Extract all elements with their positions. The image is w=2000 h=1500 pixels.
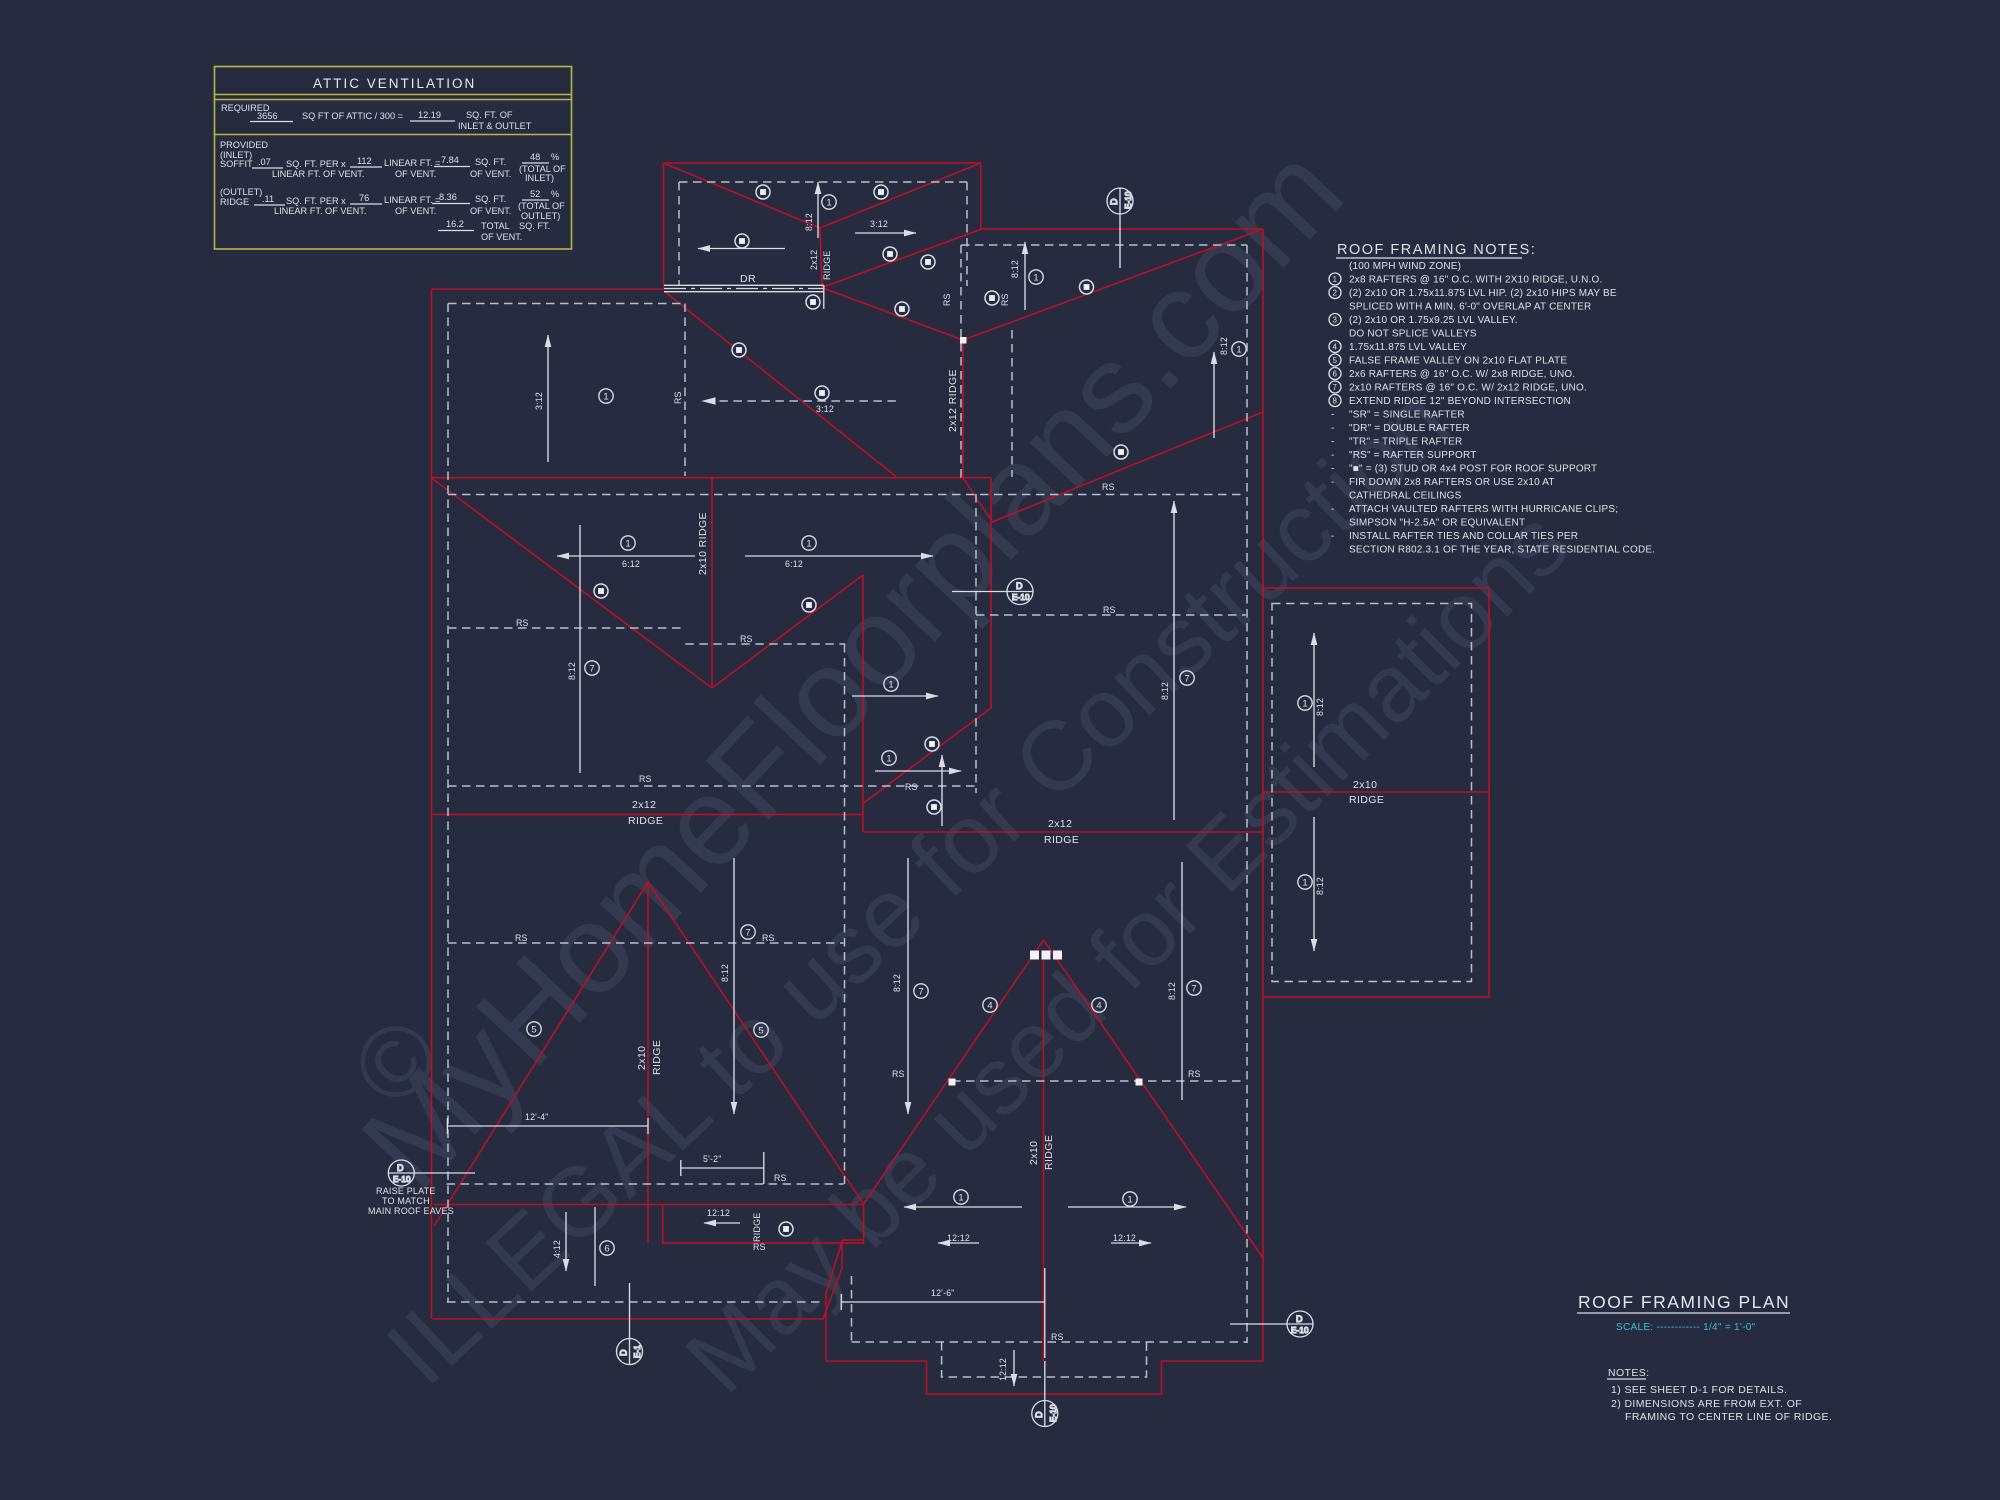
svg-text:NOTES:: NOTES: [1608, 1367, 1650, 1379]
svg-text:FIR DOWN 2x8 RAFTERS OR USE 2x: FIR DOWN 2x8 RAFTERS OR USE 2x10 AT [1349, 477, 1555, 488]
svg-text:MAIN ROOF EAVES: MAIN ROOF EAVES [368, 1206, 454, 1216]
svg-text:3: 3 [1333, 316, 1338, 325]
svg-text:"TR" = TRIPLE RAFTER: "TR" = TRIPLE RAFTER [1349, 437, 1462, 448]
svg-text:8:12: 8:12 [892, 974, 902, 992]
svg-text:1: 1 [958, 1192, 963, 1203]
svg-text:5: 5 [758, 1025, 763, 1036]
svg-text:DO NOT SPLICE VALLEYS: DO NOT SPLICE VALLEYS [1349, 329, 1477, 340]
svg-text:ATTIC VENTILATION: ATTIC VENTILATION [313, 76, 476, 91]
svg-text:RIDGE: RIDGE [1044, 834, 1079, 846]
svg-text:SQ. FT.: SQ. FT. [519, 221, 550, 231]
svg-text:E-10: E-10 [1049, 1404, 1058, 1422]
svg-text:%: % [551, 189, 559, 199]
svg-text:SOFFIT: SOFFIT [220, 159, 253, 169]
svg-text:RS: RS [1102, 482, 1115, 492]
svg-text:LINEAR FT. =: LINEAR FT. = [384, 195, 440, 205]
svg-text:"RS" = RAFTER SUPPORT: "RS" = RAFTER SUPPORT [1349, 450, 1477, 461]
svg-text:TO MATCH: TO MATCH [382, 1196, 430, 1206]
svg-text:-: - [1331, 531, 1335, 542]
svg-text:-: - [1331, 477, 1335, 488]
svg-text:SQ. FT.: SQ. FT. [475, 194, 506, 204]
svg-text:6:12: 6:12 [622, 559, 640, 569]
svg-text:"DR" = DOUBLE RAFTER: "DR" = DOUBLE RAFTER [1349, 423, 1470, 434]
svg-text:RS: RS [516, 618, 529, 628]
svg-text:ATTACH VAULTED RAFTERS WITH HU: ATTACH VAULTED RAFTERS WITH HURRICANE CL… [1349, 504, 1618, 515]
svg-text:-: - [1331, 410, 1335, 421]
svg-text:LINEAR FT. =: LINEAR FT. = [384, 158, 440, 168]
svg-text:-: - [1331, 464, 1335, 475]
svg-text:RS: RS [1103, 605, 1116, 615]
svg-text:1: 1 [603, 391, 608, 402]
svg-text:RIDGE: RIDGE [822, 250, 832, 280]
svg-text:RS: RS [774, 1173, 787, 1183]
svg-text:1: 1 [1333, 275, 1338, 284]
svg-text:3:12: 3:12 [816, 404, 834, 414]
svg-text:RIDGE: RIDGE [1349, 794, 1384, 806]
svg-text:8:12: 8:12 [1167, 982, 1177, 1000]
svg-text:2: 2 [1333, 289, 1338, 298]
svg-text:D: D [619, 1349, 629, 1356]
svg-text:SQ FT OF ATTIC / 300 =: SQ FT OF ATTIC / 300 = [302, 111, 403, 121]
svg-text:1: 1 [1302, 877, 1307, 888]
svg-text:1: 1 [1236, 344, 1241, 355]
svg-text:1: 1 [1302, 698, 1307, 709]
svg-text:RS: RS [1000, 293, 1010, 306]
svg-text:52: 52 [530, 189, 540, 199]
svg-text:RS: RS [905, 782, 918, 792]
svg-text:2) DIMENSIONS ARE FROM EXT. O: 2) DIMENSIONS ARE FROM EXT. OF [1611, 1398, 1802, 1410]
svg-text:4: 4 [1333, 343, 1338, 352]
svg-text:LINEAR FT. OF VENT.: LINEAR FT. OF VENT. [274, 206, 366, 216]
svg-text:8.36: 8.36 [439, 192, 457, 202]
svg-text:-: - [1331, 423, 1335, 434]
svg-text:-: - [1331, 437, 1335, 448]
svg-text:(2) 2x10 OR 1.75x11.875 LVL HI: (2) 2x10 OR 1.75x11.875 LVL HIP. (2) 2x1… [1349, 288, 1617, 299]
svg-text:OF VENT.: OF VENT. [395, 169, 436, 179]
svg-text:8: 8 [1333, 397, 1338, 406]
svg-text:8:12: 8:12 [1160, 682, 1170, 700]
svg-text:PROVIDED: PROVIDED [220, 140, 268, 150]
svg-text:2x10: 2x10 [1353, 779, 1377, 791]
svg-text:3:12: 3:12 [534, 392, 544, 410]
svg-text:D: D [1296, 1314, 1303, 1324]
svg-text:.11: .11 [262, 194, 274, 204]
svg-text:D: D [1034, 1411, 1044, 1418]
svg-text:3656: 3656 [257, 111, 277, 121]
svg-text:RS: RS [639, 774, 652, 784]
svg-text:6: 6 [604, 1243, 609, 1254]
svg-text:5: 5 [531, 1024, 536, 1035]
svg-text:E-10: E-10 [1012, 593, 1030, 602]
svg-text:8:12: 8:12 [1219, 337, 1229, 355]
svg-text:1: 1 [826, 197, 831, 208]
svg-text:E-1: E-1 [633, 1345, 642, 1358]
svg-text:1: 1 [806, 538, 811, 549]
svg-text:7: 7 [1191, 983, 1196, 994]
svg-text:2x12: 2x12 [809, 250, 819, 270]
svg-text:112: 112 [357, 156, 372, 166]
svg-text:OF VENT.: OF VENT. [470, 206, 511, 216]
svg-text:"SR" = SINGLE RAFTER: "SR" = SINGLE RAFTER [1349, 410, 1465, 421]
svg-text:RIDGE: RIDGE [651, 1040, 663, 1075]
svg-text:RS: RS [942, 293, 952, 306]
svg-text:(100 MPH WIND ZONE): (100 MPH WIND ZONE) [1349, 261, 1461, 272]
svg-text:E-10: E-10 [1291, 1326, 1309, 1335]
svg-text:2x12: 2x12 [1048, 818, 1072, 830]
svg-text:(TOTAL OF: (TOTAL OF [518, 201, 565, 211]
svg-text:1: 1 [1127, 1194, 1132, 1205]
svg-text:2x8 RAFTERS @ 16" O.C. WITH 2X: 2x8 RAFTERS @ 16" O.C. WITH 2X10 RIDGE, … [1349, 275, 1603, 286]
svg-text:RS: RS [673, 391, 683, 404]
svg-text:-: - [1331, 504, 1335, 515]
svg-text:INLET & OUTLET: INLET & OUTLET [458, 121, 532, 131]
svg-text:RAISE PLATE: RAISE PLATE [376, 1186, 436, 1196]
svg-text:1: 1 [886, 753, 891, 764]
svg-text:7: 7 [918, 986, 923, 997]
svg-text:RS: RS [515, 933, 528, 943]
svg-text:7.84: 7.84 [441, 155, 459, 165]
svg-text:RS: RS [892, 1069, 905, 1079]
svg-text:OUTLET): OUTLET) [521, 211, 560, 221]
svg-text:RS: RS [1051, 1332, 1064, 1342]
svg-text:RIDGE: RIDGE [1043, 1135, 1055, 1170]
svg-text:8:12: 8:12 [720, 964, 730, 982]
svg-text:E-10: E-10 [1124, 191, 1133, 209]
svg-text:OF VENT.: OF VENT. [395, 206, 436, 216]
svg-text:8:12: 8:12 [1010, 260, 1020, 278]
svg-text:RS: RS [740, 634, 753, 644]
svg-text:1) SEE SHEET D-1 FOR DETAILS.: 1) SEE SHEET D-1 FOR DETAILS. [1611, 1384, 1787, 1396]
svg-text:D: D [1016, 581, 1023, 591]
svg-text:SQ. FT. OF: SQ. FT. OF [466, 110, 513, 120]
svg-text:4: 4 [1096, 1000, 1101, 1011]
svg-text:7: 7 [1333, 383, 1338, 392]
svg-text:CATHEDRAL CEILINGS: CATHEDRAL CEILINGS [1349, 491, 1462, 502]
svg-text:3:12: 3:12 [870, 219, 888, 229]
svg-text:SECTION R802.3.1 OF THE YEAR,: SECTION R802.3.1 OF THE YEAR, STATE RESI… [1349, 545, 1655, 556]
svg-text:RS: RS [762, 933, 775, 943]
svg-text:1: 1 [1033, 272, 1038, 283]
svg-text:LINEAR FT. OF VENT.: LINEAR FT. OF VENT. [272, 169, 364, 179]
svg-text:"■" = (3) STUD OR 4x4 POST: "■" = (3) STUD OR 4x4 POST FOR ROOF SUPP… [1349, 464, 1597, 475]
svg-text:RIDGE: RIDGE [628, 815, 663, 827]
svg-text:RIDGE: RIDGE [220, 197, 249, 207]
svg-text:(OUTLET): (OUTLET) [220, 187, 262, 197]
svg-text:12.19: 12.19 [418, 110, 441, 120]
svg-text:2x10 RIDGE: 2x10 RIDGE [697, 512, 709, 575]
svg-text:7: 7 [1184, 673, 1189, 684]
svg-text:4: 4 [987, 1000, 992, 1011]
svg-text:8:12: 8:12 [804, 213, 814, 231]
svg-text:7: 7 [589, 663, 594, 674]
svg-text:FRAMING TO CENTER LINE OF RIDG: FRAMING TO CENTER LINE OF RIDGE. [1625, 1411, 1832, 1423]
svg-text:.07: .07 [258, 157, 271, 167]
svg-text:2x6 RAFTERS @ 16" O.C. W/ 2x8: 2x6 RAFTERS @ 16" O.C. W/ 2x8 RIDGE, UNO… [1349, 369, 1575, 380]
svg-text:1.75x11.875 LVL VALLEY: 1.75x11.875 LVL VALLEY [1349, 342, 1467, 353]
svg-text:2x12 RIDGE: 2x12 RIDGE [947, 369, 959, 432]
svg-text:2x12: 2x12 [632, 799, 656, 811]
svg-text:OF VENT.: OF VENT. [481, 232, 522, 242]
svg-text:FALSE FRAME VALLEY ON 2x10 FLA: FALSE FRAME VALLEY ON 2x10 FLAT PLATE [1349, 356, 1567, 367]
svg-text:EXTEND RIDGE 12" BEYOND INTERS: EXTEND RIDGE 12" BEYOND INTERSECTION [1349, 396, 1571, 407]
svg-text:8:12: 8:12 [1315, 698, 1325, 716]
svg-text:INSTALL RAFTER TIES AND COLLAR: INSTALL RAFTER TIES AND COLLAR TIES PER [1349, 531, 1578, 542]
svg-text:SQ. FT. PER x: SQ. FT. PER x [286, 196, 346, 206]
svg-text:INLET): INLET) [525, 173, 554, 183]
svg-text:12:12: 12:12 [1113, 1233, 1136, 1243]
svg-text:8:12: 8:12 [1315, 877, 1325, 895]
svg-text:12:12: 12:12 [707, 1208, 730, 1218]
svg-text:12:12: 12:12 [947, 1233, 970, 1243]
svg-text:TOTAL: TOTAL [481, 221, 510, 231]
svg-text:1: 1 [625, 538, 630, 549]
svg-text:(2) 2x10 OR 1.75x9.25 LVL VALL: (2) 2x10 OR 1.75x9.25 LVL VALLEY. [1349, 315, 1518, 326]
svg-text:DR: DR [740, 273, 756, 285]
svg-text:E-10: E-10 [393, 1175, 411, 1184]
svg-text:6:12: 6:12 [785, 559, 803, 569]
svg-text:5: 5 [1333, 356, 1338, 365]
svg-text:SPLICED WITH A MIN. 6'-0" OVER: SPLICED WITH A MIN. 6'-0" OVERLAP AT CEN… [1349, 302, 1591, 313]
svg-text:12'-6": 12'-6" [931, 1288, 955, 1298]
svg-text:%: % [551, 152, 559, 162]
svg-text:SIMPSON "H-2.5A" OR EQUIVALENT: SIMPSON "H-2.5A" OR EQUIVALENT [1349, 518, 1525, 529]
svg-text:6: 6 [1333, 370, 1338, 379]
svg-text:D: D [397, 1163, 404, 1173]
svg-text:RIDGE: RIDGE [752, 1212, 762, 1242]
svg-text:5'-2": 5'-2" [703, 1154, 722, 1164]
svg-text:12:12: 12:12 [998, 1358, 1008, 1381]
svg-text:SQ. FT. PER x: SQ. FT. PER x [286, 159, 346, 169]
svg-text:2x10: 2x10 [1028, 1141, 1040, 1165]
svg-text:76: 76 [359, 193, 369, 203]
svg-text:16.2: 16.2 [446, 219, 464, 229]
svg-text:OF VENT.: OF VENT. [470, 169, 511, 179]
svg-text:7: 7 [745, 927, 750, 938]
svg-text:1: 1 [888, 679, 893, 690]
svg-text:D: D [1109, 198, 1119, 205]
svg-text:2x10: 2x10 [636, 1046, 648, 1070]
svg-text:ROOF FRAMING PLAN: ROOF FRAMING PLAN [1578, 1292, 1790, 1312]
svg-text:ROOF FRAMING NOTES:: ROOF FRAMING NOTES: [1337, 242, 1536, 258]
svg-text:-: - [1331, 450, 1335, 461]
svg-text:12'-4": 12'-4" [525, 1112, 549, 1122]
svg-text:8:12: 8:12 [567, 662, 577, 680]
svg-text:SQ. FT.: SQ. FT. [475, 157, 506, 167]
svg-text:2x10 RAFTERS @ 16" O.C. W/ 2x1: 2x10 RAFTERS @ 16" O.C. W/ 2x12 RIDGE, U… [1349, 383, 1587, 394]
svg-text:48: 48 [530, 152, 540, 162]
svg-text:SCALE: ------------ 1/4" = 1'-: SCALE: ------------ 1/4" = 1'-0" [1616, 1322, 1756, 1333]
svg-text:4:12: 4:12 [552, 1240, 562, 1258]
svg-text:RS: RS [753, 1242, 766, 1252]
svg-text:RS: RS [1188, 1069, 1201, 1079]
